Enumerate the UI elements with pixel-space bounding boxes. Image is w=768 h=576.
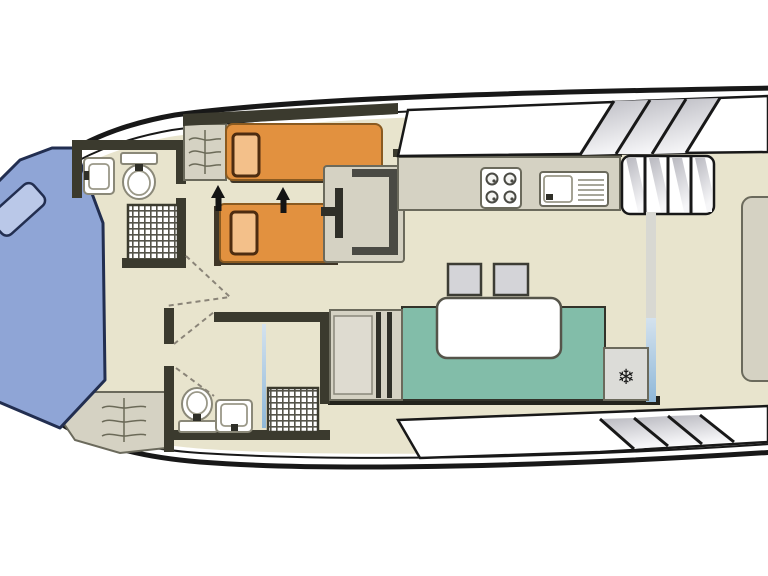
wall <box>320 312 330 404</box>
stool <box>494 264 528 295</box>
aft-bench <box>742 197 768 381</box>
burner <box>487 192 498 203</box>
twin-bed-top-pillow <box>233 134 259 176</box>
wall <box>72 140 82 198</box>
burner <box>505 174 516 185</box>
stove <box>481 168 521 208</box>
wall <box>214 312 330 322</box>
burner <box>505 192 516 203</box>
fridge: ❄ <box>604 348 648 400</box>
boat-floorplan: ❄ <box>0 0 768 576</box>
twin-bed-bottom-pillow <box>231 212 257 254</box>
steps-cabinet <box>330 310 402 400</box>
toilet-fore <box>121 153 157 199</box>
shower-screen <box>262 324 266 428</box>
floorplan-canvas: ❄ <box>0 0 768 576</box>
shower-tray <box>128 205 178 260</box>
wall <box>164 308 174 344</box>
burner <box>487 174 498 185</box>
wardrobe-fore <box>184 124 226 180</box>
helm-station <box>321 166 404 262</box>
fridge-snowflake-icon: ❄ <box>617 365 635 389</box>
steering-wheel <box>335 188 343 238</box>
partition-strip <box>646 212 656 322</box>
steering-wheel <box>321 207 336 216</box>
shower-fore <box>122 198 186 268</box>
sink-fore <box>84 158 114 194</box>
wall <box>72 140 186 150</box>
galley-sink <box>540 172 608 206</box>
shower-tray-aft <box>268 388 318 432</box>
galley <box>393 149 622 210</box>
dinette-table <box>437 298 561 358</box>
sink-aft <box>216 400 252 432</box>
side-door-steps <box>622 156 714 214</box>
stool <box>448 264 481 295</box>
